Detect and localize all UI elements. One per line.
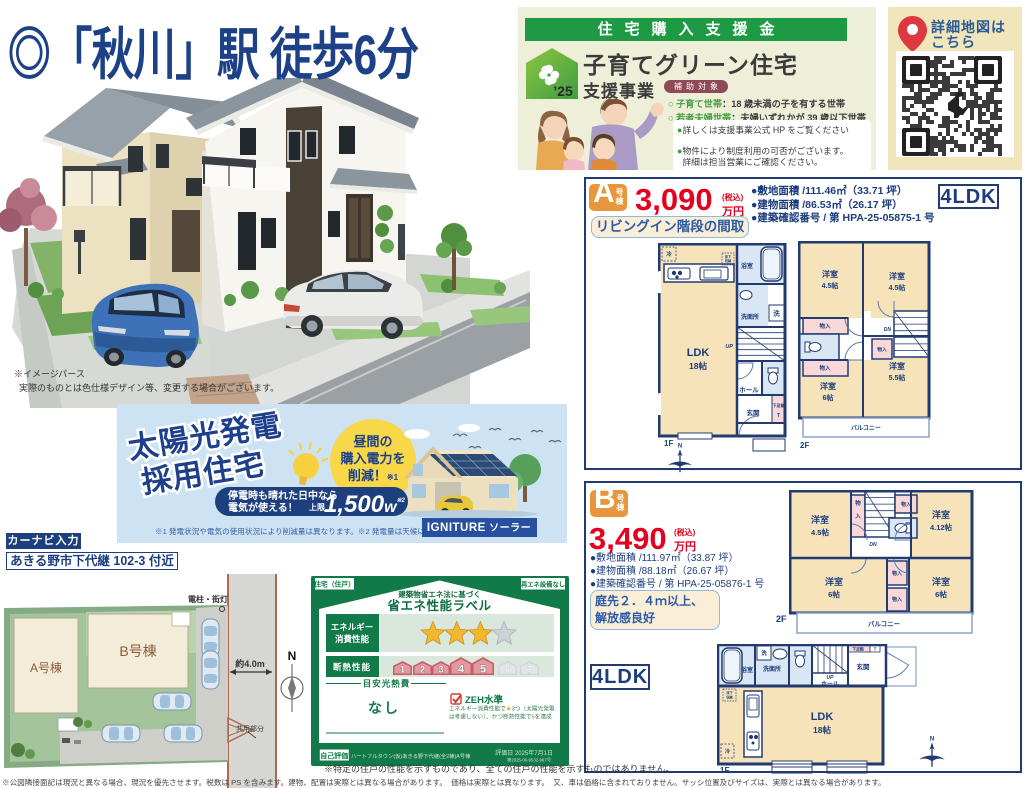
svg-text:LDK: LDK xyxy=(687,347,710,359)
svg-text:は考慮しない）、かつ断熱性能で5を達成: は考慮しない）、かつ断熱性能で5を達成 xyxy=(449,713,552,721)
svg-text:停電時も晴れた日中なら: 停電時も晴れた日中なら xyxy=(228,489,338,502)
svg-text:エネルギー: エネルギー xyxy=(331,622,374,632)
svg-text:5: 5 xyxy=(480,664,486,676)
svg-text:約4.0m: 約4.0m xyxy=(235,658,265,669)
svg-text:LDK: LDK xyxy=(811,711,834,723)
svg-text:購入電力を: 購入電力を xyxy=(339,451,405,466)
svg-text:2F: 2F xyxy=(800,441,809,450)
svg-text:バルコニー: バルコニー xyxy=(868,620,900,628)
svg-text:物入: 物入 xyxy=(901,501,911,508)
svg-text:収納: 収納 xyxy=(725,258,731,263)
svg-text:共用部分: 共用部分 xyxy=(236,724,264,733)
svg-text:’25: ’25 xyxy=(553,83,573,99)
svg-text:下足箱: 下足箱 xyxy=(852,647,864,652)
svg-text:1F: 1F xyxy=(720,766,729,775)
svg-text:T: T xyxy=(777,413,780,419)
svg-text:収納: 収納 xyxy=(726,695,732,700)
svg-text:4.5帖: 4.5帖 xyxy=(822,281,839,290)
svg-text:IGNITURE ソーラー: IGNITURE ソーラー xyxy=(427,522,531,534)
svg-text:下足箱: 下足箱 xyxy=(773,402,785,408)
svg-text:A号棟: A号棟 xyxy=(30,660,62,675)
svg-text:7: 7 xyxy=(527,665,532,675)
svg-text:冷: 冷 xyxy=(666,250,672,258)
svg-text:冷: 冷 xyxy=(725,748,730,755)
svg-text:自己評価: 自己評価 xyxy=(320,751,348,760)
svg-text:上限: 上限 xyxy=(309,502,325,512)
svg-text:物入: 物入 xyxy=(892,596,902,603)
svg-text:洗面所: 洗面所 xyxy=(763,665,781,673)
svg-text:電柱・街灯: 電柱・街灯 xyxy=(188,594,228,604)
svg-text:5.5帖: 5.5帖 xyxy=(889,373,906,382)
svg-text:断熱性能: 断熱性能 xyxy=(333,662,371,672)
svg-text:入: 入 xyxy=(854,513,861,520)
svg-text:洋室: 洋室 xyxy=(889,271,905,281)
svg-text:B号棟: B号棟 xyxy=(119,643,156,659)
svg-text:床下: 床下 xyxy=(726,690,733,695)
svg-text:玄関: 玄関 xyxy=(857,662,871,671)
svg-text:DN: DN xyxy=(869,542,877,548)
svg-text:洋室: 洋室 xyxy=(825,576,843,587)
svg-text:18帖: 18帖 xyxy=(813,725,831,735)
svg-text:UP: UP xyxy=(725,344,733,350)
svg-text:3: 3 xyxy=(438,665,443,675)
svg-text:2: 2 xyxy=(420,665,425,675)
svg-text:建築物省エネ法に基づく: 建築物省エネ法に基づく xyxy=(397,589,481,599)
svg-text:洋室: 洋室 xyxy=(811,514,829,525)
svg-text:再エネ設備なし: 再エネ設備なし xyxy=(521,580,565,589)
svg-text:N: N xyxy=(678,444,682,450)
svg-text:4.5帖: 4.5帖 xyxy=(889,283,906,292)
svg-text:6帖: 6帖 xyxy=(828,589,840,599)
svg-text:ハートフルタウン(仮)あきる野下代継(全2棟)A号棟: ハートフルタウン(仮)あきる野下代継(全2棟)A号棟 xyxy=(351,752,471,760)
svg-text:洋室: 洋室 xyxy=(889,361,905,371)
svg-text:6帖: 6帖 xyxy=(935,589,947,599)
svg-text:洗: 洗 xyxy=(773,309,780,318)
svg-text:物入: 物入 xyxy=(819,322,831,330)
svg-text:洗: 洗 xyxy=(761,649,767,657)
svg-text:洋室: 洋室 xyxy=(932,576,950,587)
svg-text:T: T xyxy=(874,647,877,652)
svg-text:4: 4 xyxy=(458,664,465,676)
svg-text:洋室: 洋室 xyxy=(932,509,950,520)
svg-text:物入: 物入 xyxy=(892,570,902,577)
svg-text:ZEH水準: ZEH水準 xyxy=(465,694,504,706)
svg-text:浴室: 浴室 xyxy=(741,262,753,270)
svg-text:洋室: 洋室 xyxy=(820,381,836,391)
svg-text:バルコニー: バルコニー xyxy=(851,424,881,432)
svg-text:4.5帖: 4.5帖 xyxy=(811,527,829,537)
svg-text:住宅（住戸）: 住宅（住戸） xyxy=(314,580,355,589)
svg-text:UP: UP xyxy=(827,675,835,681)
svg-text:物入: 物入 xyxy=(877,346,887,353)
svg-text:1: 1 xyxy=(400,665,405,675)
svg-text:物入: 物入 xyxy=(819,364,831,372)
svg-text:エネルギー消費性能で★3つ（太陽光発電: エネルギー消費性能で★3つ（太陽光発電 xyxy=(449,705,555,713)
svg-text:18帖: 18帖 xyxy=(689,361,707,371)
svg-text:1F: 1F xyxy=(664,439,673,448)
svg-text:目安光熱費: 目安光熱費 xyxy=(363,679,411,689)
svg-text:消費性能: 消費性能 xyxy=(335,634,370,644)
svg-text:評価日 2025年7月1日: 評価日 2025年7月1日 xyxy=(495,749,553,757)
svg-text:洋室: 洋室 xyxy=(822,269,838,279)
svg-text:省エネ性能ラベル: 省エネ性能ラベル xyxy=(386,598,491,613)
svg-text:DN: DN xyxy=(884,327,892,333)
svg-text:物: 物 xyxy=(855,499,861,507)
svg-text:洗面所: 洗面所 xyxy=(741,313,759,321)
svg-text:浴室: 浴室 xyxy=(741,666,753,674)
svg-text:N: N xyxy=(930,736,935,743)
svg-text:6帖: 6帖 xyxy=(823,393,834,402)
svg-text:昼間の: 昼間の xyxy=(353,434,392,449)
svg-text:ホール: ホール xyxy=(739,386,759,394)
svg-text:電気が使える！: 電気が使える！ xyxy=(228,501,298,514)
svg-text:N: N xyxy=(288,649,297,663)
svg-text:4.12帖: 4.12帖 xyxy=(930,522,953,532)
svg-text:6: 6 xyxy=(505,665,510,675)
svg-text:なし: なし xyxy=(368,700,400,716)
